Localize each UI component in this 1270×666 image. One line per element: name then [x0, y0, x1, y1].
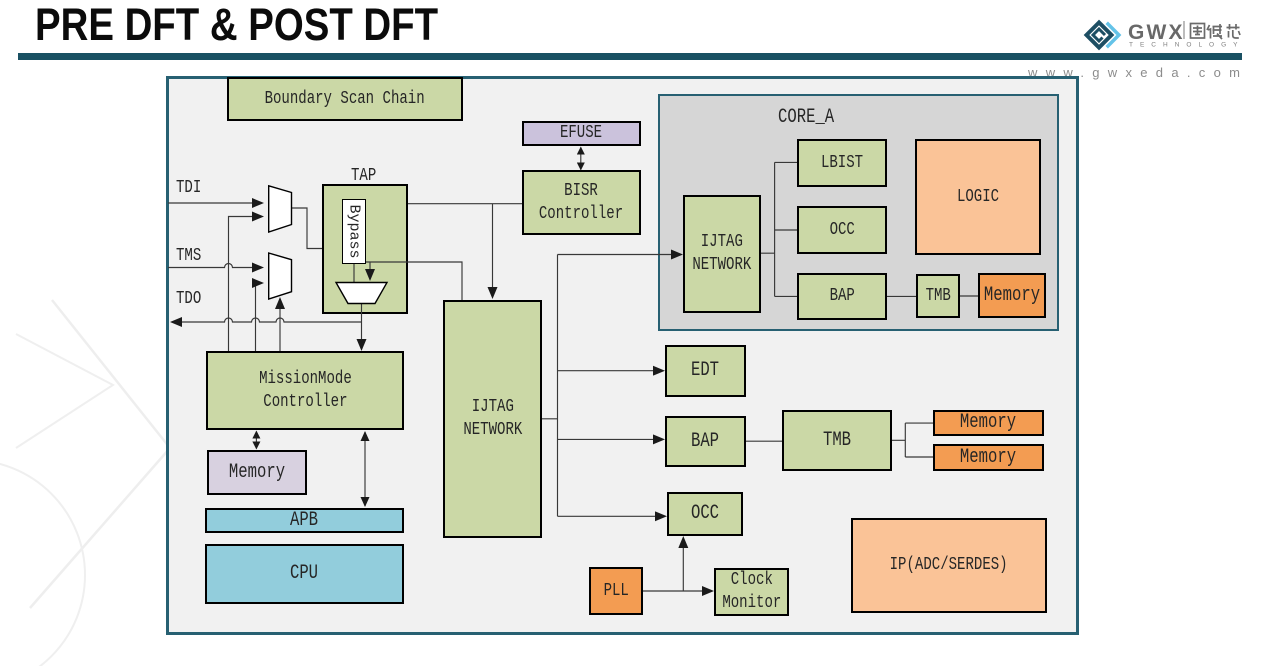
svg-text:TECHNOLOGY: TECHNOLOGY	[1129, 42, 1245, 49]
